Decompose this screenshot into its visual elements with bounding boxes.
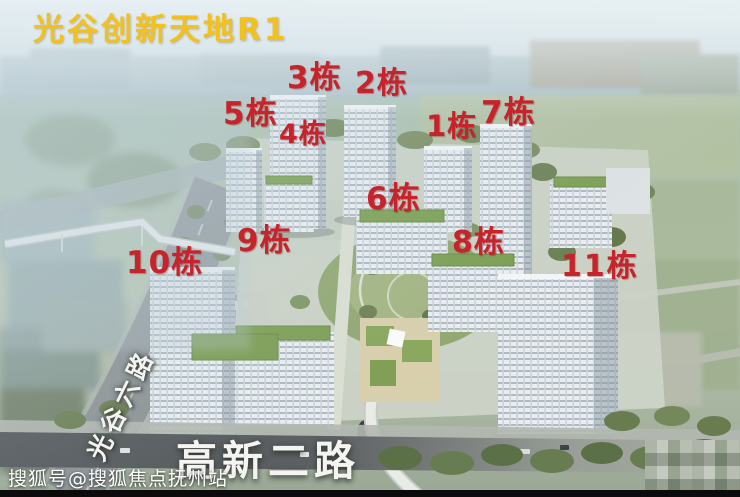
building-label-8: 8栋 <box>452 228 505 258</box>
building-label-3: 3栋 <box>287 63 342 94</box>
bottom-black-bar <box>0 490 740 497</box>
project-title: 光谷创新天地R1 <box>33 4 288 49</box>
aerial-rendering-page: 光谷创新天地R1 3栋 2栋 5栋 4栋 1栋 7栋 6栋 9栋 8栋 10栋 … <box>0 0 740 497</box>
building-label-5: 5栋 <box>223 99 278 130</box>
watermark-text: 搜狐号@搜狐焦点抚州站 <box>8 464 228 491</box>
building-label-7: 7栋 <box>481 98 536 129</box>
pixelated-censor-patch <box>645 440 740 492</box>
building-label-10: 10栋 <box>126 248 203 279</box>
building-label-1: 1栋 <box>426 112 477 141</box>
building-label-4: 4栋 <box>279 121 327 148</box>
building-label-11: 11栋 <box>561 252 639 282</box>
building-label-9: 9栋 <box>237 226 292 257</box>
building-label-2: 2栋 <box>355 69 408 99</box>
building-label-6: 6栋 <box>366 184 421 215</box>
